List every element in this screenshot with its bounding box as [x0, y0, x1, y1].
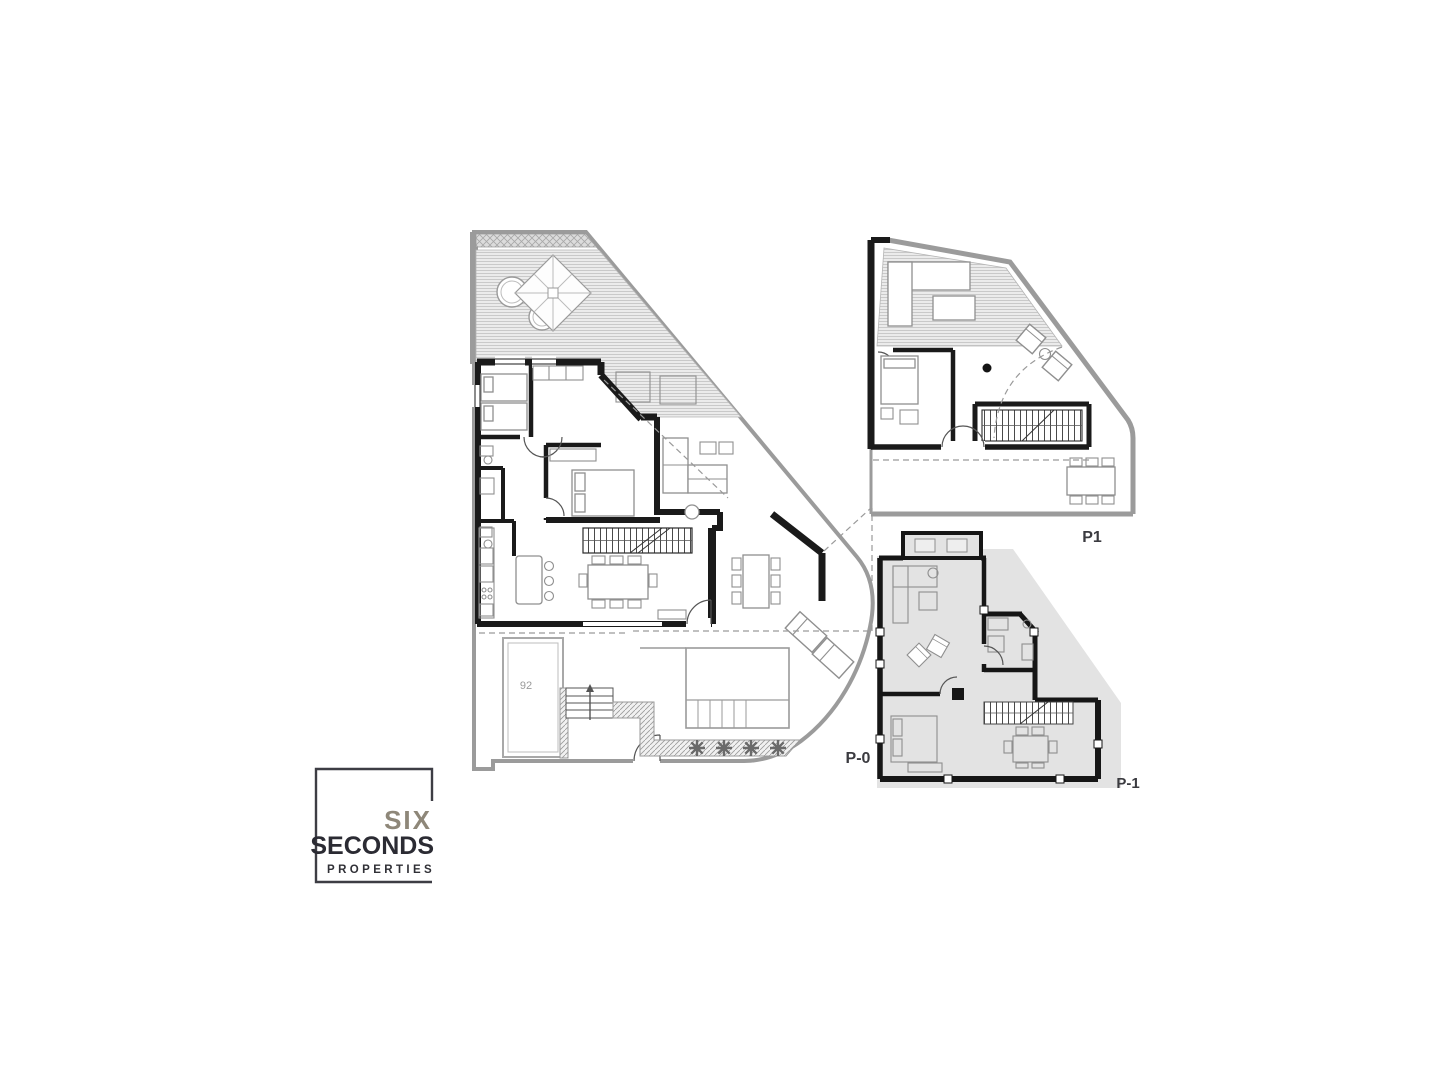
dining-table	[579, 556, 657, 608]
brand-logo: SIX SECONDS PROPERTIES	[310, 769, 435, 882]
bedroom-p1	[881, 356, 918, 424]
logo-word-seconds: SECONDS	[310, 832, 434, 860]
sun-loungers	[785, 612, 853, 678]
exterior-steps	[566, 684, 613, 720]
lightwell	[903, 533, 981, 558]
door-post	[952, 688, 964, 700]
plant-icon	[716, 740, 732, 756]
plant-icon	[689, 740, 705, 756]
stairs	[583, 528, 692, 553]
plant-icon	[770, 740, 786, 756]
floor-plan-drawing: 92 P-0	[0, 0, 1440, 1080]
plan-sheet: 92 P-0	[0, 0, 1440, 1080]
stairs-p1	[982, 410, 1082, 441]
plan-p0: 92 P-0	[472, 232, 873, 769]
master-bed	[550, 449, 634, 516]
plant-icon	[743, 740, 759, 756]
kitchen	[479, 528, 554, 618]
plan-p1: P1	[871, 240, 1133, 546]
pool-size-label: 92	[520, 680, 532, 692]
column-dot	[983, 364, 992, 373]
logo-word-properties: PROPERTIES	[327, 864, 435, 876]
plan-p-1: P-1	[876, 533, 1140, 792]
outdoor-dining-table	[732, 555, 780, 608]
stairs-p-1	[984, 702, 1073, 724]
logo-word-six: SIX	[384, 805, 432, 835]
garage-outline	[640, 648, 789, 728]
floor-label-p0: P-0	[846, 750, 871, 767]
floor-label-p1: P1	[1082, 529, 1102, 546]
boundary-hatch-strip	[476, 234, 597, 247]
pool: 92	[503, 638, 568, 758]
floor-label-p-1: P-1	[1116, 775, 1139, 792]
outdoor-dining-p1	[1067, 458, 1115, 504]
bathroom-fixtures	[480, 446, 494, 548]
